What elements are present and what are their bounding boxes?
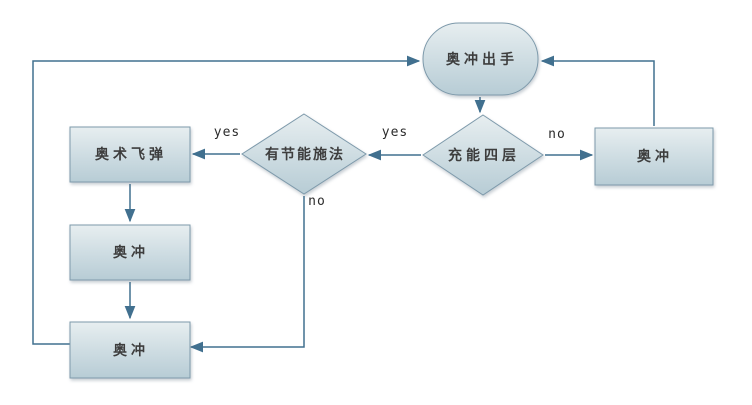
- flowchart-svg: 奥冲出手 充能四层 有节能施法 奥术飞弹 奥冲 奥冲: [0, 0, 752, 405]
- nodes: 奥冲出手 充能四层 有节能施法 奥术飞弹 奥冲 奥冲: [70, 23, 713, 378]
- edge-label-charge-no: no: [548, 127, 566, 142]
- edge-label-clearcast-yes: yes: [214, 125, 240, 140]
- node-clearcast-check: 有节能施法: [242, 114, 366, 194]
- edge-clearcast-no-to-surge-bottom: [191, 196, 304, 347]
- connectors: [33, 61, 654, 347]
- edge-label-charge-yes: yes: [382, 125, 408, 140]
- node-start: 奥冲出手: [423, 23, 538, 95]
- node-charge-check-label: 充能四层: [448, 147, 520, 164]
- node-clearcast-check-label: 有节能施法: [265, 146, 345, 163]
- node-start-label: 奥冲出手: [446, 51, 518, 68]
- edge-label-clearcast-no: no: [308, 194, 326, 209]
- node-surge-bottom: 奥冲: [70, 322, 190, 378]
- edge-surge-right-loop-to-start: [542, 61, 654, 126]
- node-surge-right: 奥冲: [595, 128, 713, 185]
- node-surge-mid: 奥冲: [70, 225, 190, 280]
- node-surge-bottom-label: 奥冲: [113, 342, 149, 359]
- node-charge-check: 充能四层: [423, 115, 543, 195]
- edge-surge-bottom-loop-to-start: [33, 61, 419, 344]
- node-arcane-missiles-label: 奥术飞弹: [95, 146, 167, 163]
- node-surge-mid-label: 奥冲: [113, 244, 149, 261]
- node-arcane-missiles: 奥术飞弹: [70, 127, 190, 182]
- diagram-canvas: 奥冲出手 充能四层 有节能施法 奥术飞弹 奥冲 奥冲: [0, 0, 752, 405]
- node-surge-right-label: 奥冲: [637, 148, 673, 165]
